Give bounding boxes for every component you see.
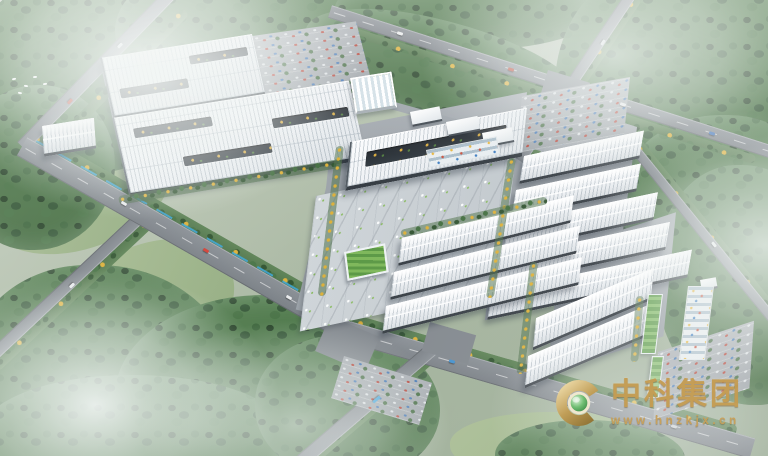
company-name: 中科集团 xyxy=(611,378,743,413)
aerial-rendering: 中科集团 www.hnzkjx.cn xyxy=(0,0,768,456)
bird xyxy=(24,85,28,87)
courtyard-slot xyxy=(133,116,213,138)
courtyard-slot xyxy=(189,47,249,65)
company-website: www.hnzkjx.cn xyxy=(611,415,743,427)
company-logo-icon xyxy=(554,378,604,428)
courtyard-slot xyxy=(272,107,350,129)
courtyard-slot xyxy=(183,143,273,167)
bird xyxy=(33,76,37,78)
watermark-text: 中科集团 www.hnzkjx.cn xyxy=(611,378,743,427)
watermark: 中科集团 www.hnzkjx.cn xyxy=(554,378,743,428)
gate-canopy xyxy=(350,71,397,114)
courtyard-slot xyxy=(119,78,189,98)
